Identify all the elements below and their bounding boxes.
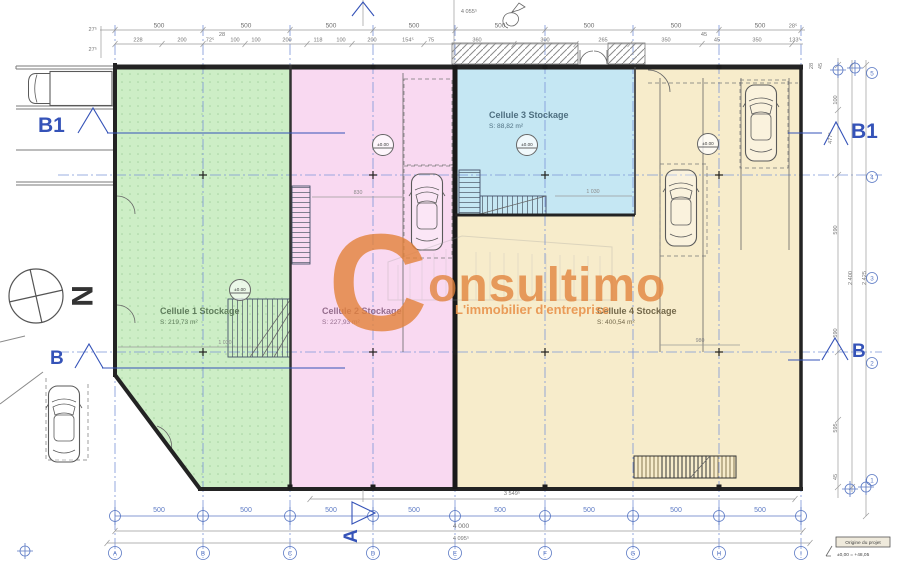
dim-bottom-major-3: 500 (325, 507, 337, 514)
car-outside (46, 386, 82, 462)
dim-top-minor-1: 228 (133, 38, 142, 44)
dim-top-minor-5: 100 (230, 38, 239, 44)
level-label-cell-2: ±0.00 (377, 142, 389, 147)
dim-right-595: 595 (833, 423, 839, 432)
cell-3-area-label: S: 88,82 m² (489, 123, 524, 130)
origin-label: Origine du projet (845, 540, 881, 546)
cell-1-area-label: S: 219,73 m² (160, 319, 199, 326)
axis-right-3: 3 (870, 276, 874, 283)
car-cell-4-b (743, 85, 779, 161)
dim-top-major-4: 500 (409, 23, 420, 30)
axis-bottom-2: B (201, 551, 205, 558)
dim-right-100: 100 (833, 95, 839, 104)
axis-right-5: 1 (870, 478, 874, 485)
canopy-hatch (452, 43, 645, 64)
dim-top-minor-6: 100 (251, 38, 260, 44)
dim-top-minor-8: 118 (314, 38, 323, 44)
level-label-cell-4: ±0.00 (702, 141, 714, 146)
dim-top-minor-3: 72⁵ (206, 37, 215, 44)
axis-bottom-6: F (543, 551, 547, 558)
dim-top-minor-20: 133⁵ (789, 37, 801, 44)
floor-grate-cell-4 (634, 456, 736, 478)
cell-3-name: Cellule 3 Stockage (489, 110, 569, 120)
car-cell-4-a (663, 170, 699, 246)
watermark-logo-letter: C (328, 206, 428, 360)
dim-top-total: 4 055⁵ (461, 8, 477, 15)
dim-bottom-major-1: 500 (153, 507, 165, 514)
dim-inner-green: 1 030 (218, 340, 231, 346)
dim-left-27-a: 27⁵ (88, 26, 97, 33)
detail-scroll-symbol (503, 3, 525, 28)
axis-bottom-1: A (113, 551, 118, 558)
axis-bottom-5: E (453, 551, 457, 558)
dim-top-major-5: 500 (495, 23, 506, 30)
stair-cell-2 (292, 186, 310, 264)
dim-top-minor-15: 265 (598, 38, 607, 44)
dim-bottom-major-5: 500 (494, 507, 506, 514)
section-b1-right: B1 (851, 120, 878, 143)
dim-top-minor-9: 100 (336, 38, 345, 44)
dim-bottom-major-8: 500 (754, 507, 766, 514)
dim-top-major-3: 500 (326, 23, 337, 30)
dim-top-minor-18: 45 (714, 38, 720, 44)
section-b1-left: B1 (38, 114, 65, 137)
cell-4-area-label: S: 400,54 m² (597, 319, 636, 326)
axis-right-1: 5 (870, 71, 874, 78)
dim-top-minor-19: 350 (752, 38, 761, 44)
dim-top-major-8: 500 (755, 23, 766, 30)
axis-right-2: 4 (870, 175, 874, 182)
axis-bottom-3: C (288, 551, 293, 558)
section-b-right: B (852, 341, 866, 362)
dim-right-total-a: 2 400 (848, 271, 854, 285)
dim-inner-beige: 980 (696, 338, 705, 344)
floor-plan: N 500 500 500 500 500 500 500 500 28⁵ 4 … (0, 0, 900, 572)
dim-top-minor-14: 300 (540, 38, 549, 44)
dim-right-590-a: 590 (833, 225, 839, 234)
north-letter: N (65, 285, 98, 307)
axis-right-4: 2 (870, 361, 874, 368)
dim-bottom-major-2: 500 (240, 507, 252, 514)
dim-top-minor-10: 200 (367, 38, 376, 44)
origin-value: ±0,00 = +48,05 (837, 552, 870, 558)
dim-top-minor-13: 360 (472, 38, 481, 44)
dim-top-major-2: 500 (241, 23, 252, 30)
dim-top-minor-12: 75 (428, 38, 434, 44)
cell-1-texture (115, 65, 290, 487)
dim-top-minor-4: 28 (219, 32, 225, 38)
level-label-cell-1: ±0.00 (234, 287, 246, 292)
dim-top-major-7: 500 (671, 23, 682, 30)
watermark-tagline: L'immobilier d'entreprise (455, 302, 609, 317)
dim-right-477: 477⁵ (827, 132, 834, 144)
dim-top-major-1: 500 (154, 23, 165, 30)
dim-right-45b: 45 (833, 474, 839, 480)
plan-drawing: N 500 500 500 500 500 500 500 500 28⁵ 4 … (0, 0, 900, 572)
dim-top-minor-16: 350 (661, 38, 670, 44)
axis-bottom-8: H (717, 551, 722, 558)
dim-left-27-b: 27⁵ (88, 46, 97, 53)
dim-bottom-span: 3 549⁵ (504, 490, 520, 497)
section-b-left: B (50, 348, 64, 369)
dim-bottom-total-a: 4 000 (453, 523, 470, 530)
dim-right-28: 28 (809, 63, 815, 69)
dim-top-minor-17: 45 (701, 32, 707, 38)
dim-top-minor-2: 200 (177, 38, 186, 44)
dim-top-minor-11: 154⁵ (402, 37, 414, 44)
axis-bottom-4: D (371, 551, 376, 558)
dim-top-minor-7: 200 (282, 38, 291, 44)
dim-inner-blue: 1 030 (586, 189, 599, 195)
north-compass: N (9, 269, 98, 323)
dim-bottom-major-4: 500 (408, 507, 420, 514)
van-outside (29, 72, 113, 106)
section-a-bottom: A (341, 529, 362, 543)
dim-right-590-b: 590 (833, 328, 839, 337)
axis-bottom-9: I (800, 551, 802, 558)
cell-1-name: Cellule 1 Stockage (160, 306, 240, 316)
axis-bottom-7: G (631, 551, 636, 558)
dim-top-major-6: 500 (584, 23, 595, 30)
dim-bottom-total-b: 4 095⁵ (453, 535, 469, 542)
dim-right-total-b: 2 425 (862, 271, 868, 285)
level-label-cell-3: ±0.00 (521, 142, 533, 147)
dim-inner-pink: 830 (354, 190, 363, 196)
dim-right-45: 45 (818, 63, 824, 69)
dim-top-end: 28⁵ (789, 23, 798, 30)
dim-bottom-major-7: 500 (670, 507, 682, 514)
dim-bottom-major-6: 500 (583, 507, 595, 514)
